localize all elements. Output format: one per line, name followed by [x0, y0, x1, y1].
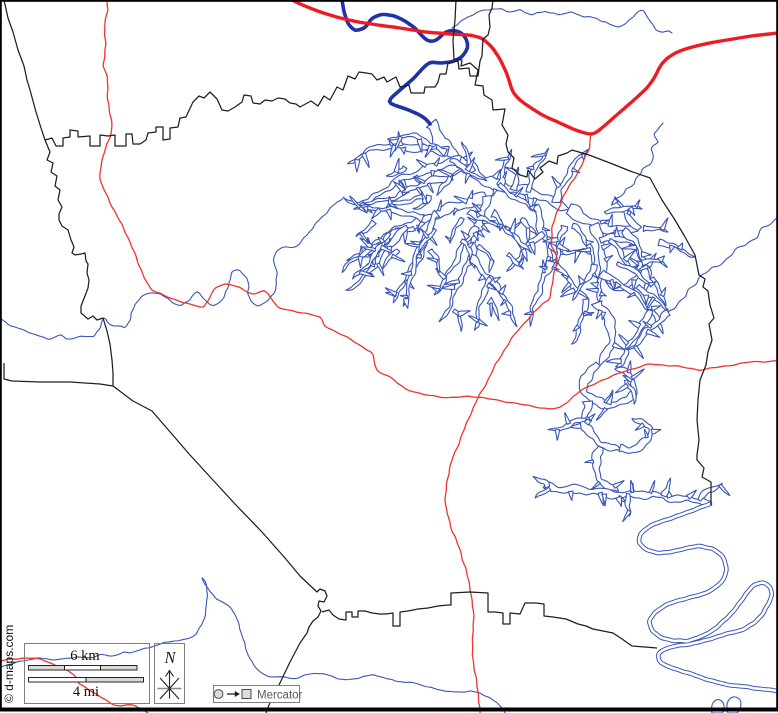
- svg-text:4 mi: 4 mi: [73, 684, 99, 700]
- svg-text:N: N: [163, 648, 176, 667]
- svg-text:6 km: 6 km: [70, 648, 100, 664]
- svg-text:Mercator: Mercator: [257, 690, 303, 702]
- svg-text:© d-maps.com: © d-maps.com: [2, 625, 16, 703]
